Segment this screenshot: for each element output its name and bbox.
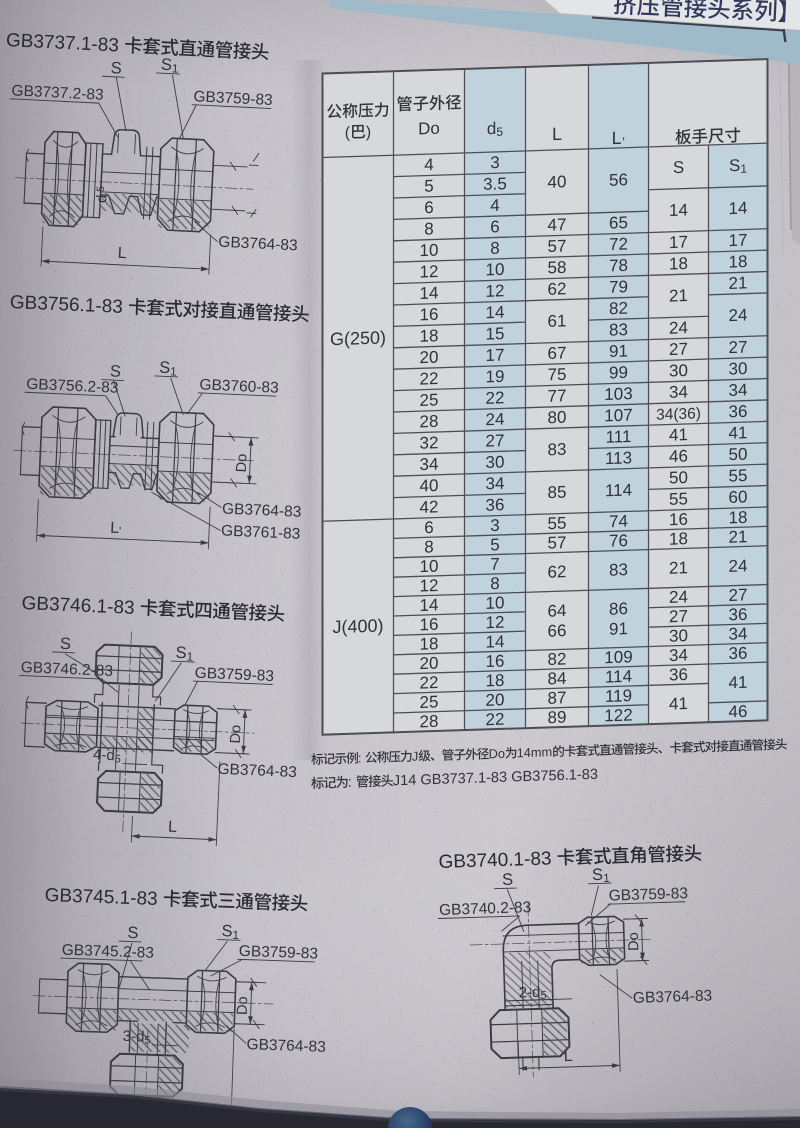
svg-text:Do: Do <box>418 119 440 139</box>
svg-text:24: 24 <box>669 318 688 338</box>
svg-text:14: 14 <box>669 200 688 220</box>
svg-text:18: 18 <box>729 508 748 528</box>
svg-text:22: 22 <box>486 388 505 408</box>
svg-text:36: 36 <box>729 402 748 422</box>
svg-text:62: 62 <box>548 562 567 582</box>
svg-text:66: 66 <box>548 621 567 641</box>
svg-text:111: 111 <box>606 427 632 447</box>
svg-text:14: 14 <box>420 595 439 615</box>
svg-text:91: 91 <box>609 619 628 639</box>
svg-text:32: 32 <box>420 433 439 453</box>
svg-text:62: 62 <box>548 279 567 299</box>
svg-text:3.5: 3.5 <box>483 174 507 194</box>
svg-text:50: 50 <box>729 445 748 465</box>
svg-text:34: 34 <box>669 645 688 665</box>
svg-text:12: 12 <box>420 576 439 596</box>
svg-text:Do: Do <box>234 453 251 472</box>
svg-text:10: 10 <box>420 557 439 577</box>
svg-text:41: 41 <box>729 673 748 693</box>
svg-text:75: 75 <box>548 365 567 385</box>
svg-text:8: 8 <box>490 574 499 593</box>
svg-text:18: 18 <box>486 671 505 691</box>
svg-text:12: 12 <box>486 281 505 301</box>
svg-text:67: 67 <box>548 343 567 363</box>
svg-text:S: S <box>60 635 72 653</box>
svg-text:82: 82 <box>548 649 567 669</box>
svg-text:L: L <box>168 819 178 836</box>
svg-text:87: 87 <box>548 688 567 708</box>
svg-text:Do: Do <box>228 725 245 744</box>
svg-text:21: 21 <box>729 527 748 547</box>
svg-text:27: 27 <box>486 431 505 451</box>
svg-text:14: 14 <box>486 632 505 652</box>
svg-text:30: 30 <box>729 359 748 379</box>
svg-text:41: 41 <box>729 423 748 443</box>
svg-text:24: 24 <box>669 587 688 607</box>
svg-text:6: 6 <box>424 518 433 537</box>
svg-text:8: 8 <box>490 239 499 258</box>
svg-text:L: L <box>563 1048 573 1065</box>
svg-text:34: 34 <box>420 455 439 475</box>
svg-text:J: J <box>412 749 418 764</box>
svg-text::: : <box>358 750 362 765</box>
svg-text:79: 79 <box>609 277 628 297</box>
svg-text:18: 18 <box>729 252 748 272</box>
svg-text:34: 34 <box>486 474 505 494</box>
svg-text:103: 103 <box>604 384 632 404</box>
svg-text:27: 27 <box>729 585 748 605</box>
svg-text:74: 74 <box>609 512 628 532</box>
svg-text:10: 10 <box>486 593 505 613</box>
svg-text:5: 5 <box>424 177 433 196</box>
svg-text:18: 18 <box>420 634 439 654</box>
svg-text:GB3764-83: GB3764-83 <box>222 500 302 520</box>
svg-text:21: 21 <box>729 273 748 293</box>
svg-text:41: 41 <box>669 694 688 714</box>
svg-text:40: 40 <box>420 476 439 496</box>
svg-text:58: 58 <box>548 258 567 278</box>
svg-text:S: S <box>502 871 514 889</box>
svg-text:34(36): 34(36) <box>656 405 701 423</box>
svg-text:8: 8 <box>424 219 433 238</box>
svg-text:Do: Do <box>235 996 252 1015</box>
svg-text:109: 109 <box>604 647 632 667</box>
svg-text:Do: Do <box>489 746 505 762</box>
svg-text:5: 5 <box>95 186 107 193</box>
svg-text:25: 25 <box>420 390 439 410</box>
svg-text:GB3764-83: GB3764-83 <box>633 987 713 1006</box>
svg-text:86: 86 <box>609 599 628 619</box>
svg-text:20: 20 <box>420 348 439 368</box>
svg-text:7: 7 <box>490 555 499 574</box>
svg-text:36: 36 <box>729 644 748 664</box>
svg-text:(: ( <box>345 125 351 142</box>
svg-text:8: 8 <box>424 537 433 556</box>
svg-text:76: 76 <box>609 531 628 551</box>
svg-text:89: 89 <box>548 708 567 728</box>
svg-text:12: 12 <box>486 613 505 633</box>
svg-text:16: 16 <box>486 651 505 671</box>
svg-text:27: 27 <box>729 338 748 358</box>
svg-text:GB3764-83: GB3764-83 <box>217 761 297 781</box>
svg-text:83: 83 <box>609 320 628 340</box>
svg-text:114: 114 <box>605 667 632 687</box>
svg-text:17: 17 <box>669 232 688 252</box>
svg-text:55: 55 <box>669 489 688 509</box>
svg-text:17: 17 <box>729 231 748 251</box>
svg-text:12: 12 <box>420 262 439 282</box>
svg-text:GB3740.1-83: GB3740.1-83 <box>438 848 552 873</box>
svg-text:S: S <box>127 924 139 942</box>
svg-text:4: 4 <box>424 155 433 174</box>
svg-text:L: L <box>117 245 127 262</box>
svg-text:S: S <box>110 59 122 78</box>
svg-text:99: 99 <box>609 363 628 383</box>
svg-text:14mm: 14mm <box>517 744 553 760</box>
svg-text:): ) <box>366 124 371 141</box>
svg-text:36: 36 <box>669 665 688 685</box>
svg-text:30: 30 <box>486 452 505 472</box>
svg-text:77: 77 <box>548 386 567 406</box>
svg-text:L: L <box>552 124 562 144</box>
svg-text:GB3761-83: GB3761-83 <box>221 522 301 542</box>
svg-text:15: 15 <box>486 324 505 344</box>
svg-text:20: 20 <box>420 654 439 674</box>
svg-text:57: 57 <box>548 236 567 256</box>
svg-text:27: 27 <box>669 339 688 359</box>
svg-text:119: 119 <box>605 686 632 706</box>
svg-text:d: d <box>94 194 110 203</box>
svg-text:46: 46 <box>729 702 748 722</box>
svg-text:56: 56 <box>609 170 628 190</box>
svg-text:82: 82 <box>609 299 628 319</box>
svg-text:17: 17 <box>486 345 505 365</box>
svg-text:55: 55 <box>729 466 748 486</box>
svg-text:91: 91 <box>609 341 628 361</box>
svg-text:47: 47 <box>548 215 567 235</box>
svg-text:72: 72 <box>609 234 628 254</box>
svg-text:40: 40 <box>548 172 567 192</box>
svg-text:21: 21 <box>669 558 688 578</box>
svg-text:28: 28 <box>420 712 439 732</box>
svg-text:18: 18 <box>669 254 688 274</box>
svg-text:113: 113 <box>605 448 632 468</box>
svg-text:3: 3 <box>490 153 499 172</box>
svg-text:107: 107 <box>604 405 632 425</box>
svg-text:24: 24 <box>729 305 748 325</box>
svg-text:30: 30 <box>669 361 688 381</box>
svg-text:10: 10 <box>420 241 439 261</box>
svg-text:61: 61 <box>548 311 567 331</box>
svg-text:22: 22 <box>420 369 439 389</box>
svg-text:S: S <box>110 362 122 380</box>
svg-text:Do: Do <box>626 932 643 951</box>
svg-text:16: 16 <box>420 305 439 325</box>
svg-text:6: 6 <box>490 217 499 236</box>
svg-text:6: 6 <box>424 198 433 217</box>
svg-text:19: 19 <box>486 367 505 387</box>
svg-text:122: 122 <box>604 705 632 725</box>
svg-text:28: 28 <box>420 412 439 432</box>
svg-text:65: 65 <box>609 213 628 233</box>
svg-text:27: 27 <box>669 607 688 627</box>
svg-text:GB3745.1-83: GB3745.1-83 <box>44 885 158 910</box>
svg-text:18: 18 <box>420 326 439 346</box>
svg-text:16: 16 <box>669 510 688 530</box>
svg-text:22: 22 <box>420 673 439 693</box>
svg-text:36: 36 <box>486 495 505 515</box>
svg-text:G(250): G(250) <box>330 327 386 349</box>
svg-text:10: 10 <box>486 260 505 280</box>
svg-text:50: 50 <box>669 468 688 488</box>
svg-text:41: 41 <box>669 425 688 445</box>
svg-text:16: 16 <box>420 615 439 635</box>
svg-text:14: 14 <box>420 283 439 303</box>
svg-text:55: 55 <box>548 514 567 534</box>
svg-text:18: 18 <box>669 529 688 549</box>
svg-text:85: 85 <box>548 483 567 503</box>
svg-text:14: 14 <box>729 198 748 218</box>
svg-text:57: 57 <box>548 533 567 553</box>
svg-text:46: 46 <box>669 446 688 466</box>
svg-text:4: 4 <box>490 196 499 215</box>
svg-text:83: 83 <box>609 560 628 580</box>
svg-text:14: 14 <box>486 303 505 323</box>
svg-text:34: 34 <box>669 382 688 402</box>
svg-text:60: 60 <box>729 487 748 507</box>
svg-text:20: 20 <box>486 690 505 710</box>
svg-text:24: 24 <box>486 410 505 430</box>
svg-text:5: 5 <box>490 535 499 554</box>
svg-text:S: S <box>673 158 684 177</box>
svg-text:25: 25 <box>420 692 439 712</box>
svg-text:84: 84 <box>548 669 567 689</box>
svg-text:21: 21 <box>669 286 688 306</box>
svg-text:3: 3 <box>490 516 499 535</box>
svg-text:30: 30 <box>669 626 688 646</box>
svg-text:114: 114 <box>605 480 632 500</box>
svg-text:78: 78 <box>609 256 628 276</box>
svg-text:83: 83 <box>548 440 567 460</box>
svg-text:34: 34 <box>729 624 748 644</box>
svg-text:GB3764-83: GB3764-83 <box>246 1036 326 1056</box>
svg-text:36: 36 <box>729 605 748 625</box>
svg-text:34: 34 <box>729 380 748 400</box>
svg-text::: : <box>348 775 352 791</box>
svg-text:24: 24 <box>729 556 748 576</box>
svg-text:22: 22 <box>486 710 505 730</box>
svg-text:J(400): J(400) <box>332 616 383 638</box>
svg-text:64: 64 <box>548 601 567 621</box>
svg-text:42: 42 <box>420 497 439 517</box>
svg-text:80: 80 <box>548 408 567 428</box>
